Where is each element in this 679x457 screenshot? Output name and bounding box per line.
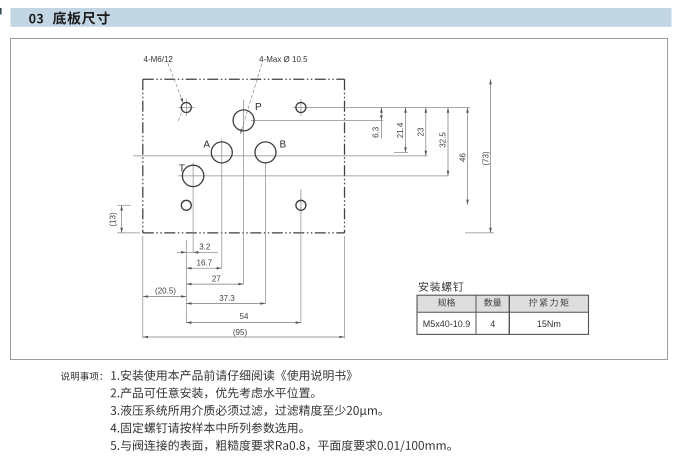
svg-text:27: 27	[212, 275, 221, 284]
svg-text:37.3: 37.3	[219, 294, 235, 303]
svg-text:(73): (73)	[482, 151, 491, 166]
svg-text:B: B	[279, 139, 286, 150]
svg-text:(95): (95)	[233, 328, 248, 337]
svg-text:15Nm: 15Nm	[537, 319, 561, 329]
svg-text:(20.5): (20.5)	[155, 287, 176, 296]
svg-text:A: A	[203, 139, 210, 150]
svg-text:4-M6/12: 4-M6/12	[144, 55, 174, 64]
svg-text:54: 54	[240, 312, 249, 321]
svg-text:16.7: 16.7	[197, 258, 213, 267]
svg-text:(13): (13)	[109, 212, 118, 227]
svg-text:32.5: 32.5	[439, 132, 448, 148]
svg-text:4: 4	[490, 319, 495, 329]
svg-text:46: 46	[458, 153, 467, 162]
svg-text:M5x40-10.9: M5x40-10.9	[423, 319, 471, 329]
svg-text:P: P	[255, 102, 262, 113]
svg-text:4-Max Ø 10.5: 4-Max Ø 10.5	[259, 55, 308, 64]
svg-text:21.4: 21.4	[396, 122, 405, 138]
svg-text:T: T	[179, 164, 185, 175]
svg-text:6.3: 6.3	[371, 126, 380, 138]
svg-text:23: 23	[417, 127, 426, 136]
svg-text:3.2: 3.2	[199, 242, 211, 251]
